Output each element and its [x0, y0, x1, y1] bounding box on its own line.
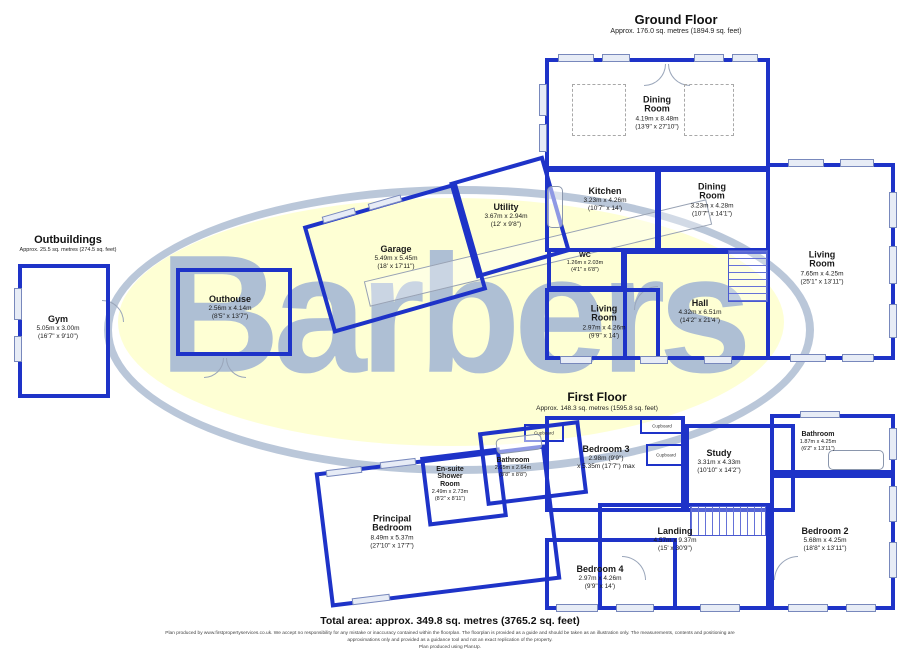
window-8	[889, 246, 897, 284]
room-dims-gym: 5.05m x 3.00m(16'7" x 9'10")	[0, 325, 123, 341]
room-label-hall: Hall4.32m x 6.51m(14'2" x 21'4")	[635, 299, 765, 325]
room-dims-bathroom-ff: 1.87m x 4.25m(6'2" x 13'11")	[753, 440, 883, 453]
window-9	[889, 304, 897, 338]
window-19	[556, 604, 598, 612]
fixture-1	[828, 450, 884, 470]
room-label-living-room-right: LivingRoom7.65m x 4.25m(25'1" x 13'11")	[757, 250, 887, 285]
total-area-text: Total area: approx. 349.8 sq. metres (37…	[0, 615, 900, 627]
first-floor-area: Approx. 148.3 sq. metres (1595.8 sq. fee…	[447, 405, 747, 412]
room-dims-landing: 4.57m x 9.37m(15' x 30'9")	[610, 537, 740, 553]
room-dims-utility: 3.67m x 2.94m(12' x 9'8")	[441, 213, 571, 229]
room-name-principal-bedroom: PrincipalBedroom	[327, 514, 457, 533]
window-12	[539, 84, 547, 116]
room-dims-study: 3.31m x 4.33m(10'10" x 14'2")	[654, 459, 784, 475]
outbuildings-area: Approx. 25.5 sq. metres (274.5 sq. feet)	[4, 247, 132, 253]
room-dims-garage: 5.49m x 5.45m(18' x 17'11")	[331, 255, 461, 271]
room-dims-outhouse: 2.56m x 4.14m(8'5" x 13'7")	[165, 305, 295, 321]
room-label-principal-bedroom: PrincipalBedroom8.49m x 5.37m(27'10" x 1…	[327, 514, 457, 549]
window-6	[840, 159, 874, 167]
room-name-bedroom-3: Bedroom 3	[541, 445, 671, 454]
room-name-bedroom-4: Bedroom 4	[535, 565, 665, 574]
room-name-living-room-right: LivingRoom	[757, 250, 887, 269]
room-label-utility: Utility3.67m x 2.94m(12' x 9'8")	[441, 203, 571, 229]
window-21	[700, 604, 740, 612]
window-14	[560, 356, 592, 364]
room-name-gym: Gym	[0, 315, 123, 324]
window-25	[889, 486, 897, 522]
window-20	[616, 604, 654, 612]
room-dims-principal-bedroom: 8.49m x 5.37m(27'10" x 17'7")	[327, 534, 457, 550]
cupboard-label-2: Cupboard	[652, 424, 672, 429]
room-dims-dining-room-main: 4.19m x 8.48m(13'9" x 27'10")	[592, 115, 722, 131]
room-name-hall: Hall	[635, 299, 765, 308]
room-label-landing: Landing4.57m x 9.37m(15' x 30'9")	[610, 527, 740, 553]
cupboard-label-1: Cupboard	[534, 431, 554, 436]
room-label-garage: Garage5.49m x 5.45m(18' x 17'11")	[331, 245, 461, 271]
room-label-wc: WC1.26m x 2.03m(4'1" x 6'8")	[520, 252, 650, 274]
room-label-gym: Gym5.05m x 3.00m(16'7" x 9'10")	[0, 315, 123, 341]
room-label-bedroom-2: Bedroom 25.68m x 4.25m(18'8" x 13'11")	[760, 527, 890, 553]
window-7	[889, 192, 897, 228]
window-3	[694, 54, 724, 62]
room-dims-wc: 1.26m x 2.03m(4'1" x 6'8")	[520, 261, 650, 274]
room-dims-bedroom-2: 5.68m x 4.25m(18'8" x 13'11")	[760, 537, 890, 553]
disclaimer-line-3: Plan produced using PlanUp.	[0, 645, 900, 652]
window-11	[842, 354, 874, 362]
room-dims-bedroom-4: 2.97m x 4.26m(9'9" x 14')	[535, 575, 665, 591]
window-24	[889, 428, 897, 460]
window-2	[602, 54, 630, 62]
room-dims-bedroom-3: 2.98m (9'9")x 5.35m (17'7") max	[541, 455, 671, 471]
ground-floor-title: Ground Floor	[526, 12, 826, 27]
room-name-dining-room-2: DiningRoom	[647, 182, 777, 201]
room-name-landing: Landing	[610, 527, 740, 536]
room-name-dining-room-main: DiningRoom	[592, 95, 722, 114]
room-label-outhouse: Outhouse2.56m x 4.14m(8'5" x 13'7")	[165, 295, 295, 321]
room-dims-living-room-right: 7.65m x 4.25m(25'1" x 13'11")	[757, 270, 887, 286]
room-name-bedroom-2: Bedroom 2	[760, 527, 890, 536]
room-name-garage: Garage	[331, 245, 461, 254]
room-label-dining-room-main: DiningRoom4.19m x 8.48m(13'9" x 27'10")	[592, 95, 722, 130]
window-13	[539, 124, 547, 152]
floorplan-canvas: Barbers Ground Floor Approx. 176.0 sq. m…	[0, 0, 900, 654]
first-floor-title: First Floor	[447, 390, 747, 404]
room-dims-living-room-gf: 2.97m x 4.26m(9'9" x 14')	[539, 324, 669, 340]
window-26	[889, 542, 897, 578]
room-dims-hall: 4.32m x 6.51m(14'2" x 21'4")	[635, 309, 765, 325]
cupboard-label-3: Cupboard	[656, 453, 676, 458]
window-4	[732, 54, 758, 62]
outbuildings-title: Outbuildings	[4, 234, 132, 246]
first-floor-heading: First Floor Approx. 148.3 sq. metres (15…	[447, 390, 747, 412]
ground-floor-area: Approx. 176.0 sq. metres (1894.9 sq. fee…	[526, 28, 826, 35]
window-23	[846, 604, 876, 612]
window-16	[704, 356, 732, 364]
window-15	[640, 356, 668, 364]
disclaimer-line-1: Plan produced by www.firstpropertyservic…	[0, 631, 900, 638]
ground-floor-heading: Ground Floor Approx. 176.0 sq. metres (1…	[526, 12, 826, 35]
room-dims-ensuite-shower-room: 2.49m x 2.73m(8'2" x 8'11")	[385, 489, 515, 502]
disclaimer-line-2: approximations only and provided as a gu…	[0, 638, 900, 645]
room-label-bathroom-ff: Bathroom1.87m x 4.25m(6'2" x 13'11")	[753, 431, 883, 453]
room-name-wc: WC	[520, 252, 650, 259]
plan-footer: Total area: approx. 349.8 sq. metres (37…	[0, 615, 900, 652]
room-dims-dining-room-2: 3.23m x 4.28m(10'7" x 14'1")	[647, 202, 777, 218]
window-22	[788, 604, 828, 612]
window-1	[558, 54, 594, 62]
room-name-bathroom-ff: Bathroom	[753, 431, 883, 438]
outbuildings-heading: Outbuildings Approx. 25.5 sq. metres (27…	[4, 234, 132, 253]
room-label-bedroom-3: Bedroom 32.98m (9'9")x 5.35m (17'7") max	[541, 445, 671, 471]
window-10	[790, 354, 826, 362]
room-label-dining-room-2: DiningRoom3.23m x 4.28m(10'7" x 14'1")	[647, 182, 777, 217]
room-name-outhouse: Outhouse	[165, 295, 295, 304]
room-label-bedroom-4: Bedroom 42.97m x 4.26m(9'9" x 14')	[535, 565, 665, 591]
window-32	[800, 411, 840, 418]
room-name-utility: Utility	[441, 203, 571, 212]
window-5	[788, 159, 824, 167]
